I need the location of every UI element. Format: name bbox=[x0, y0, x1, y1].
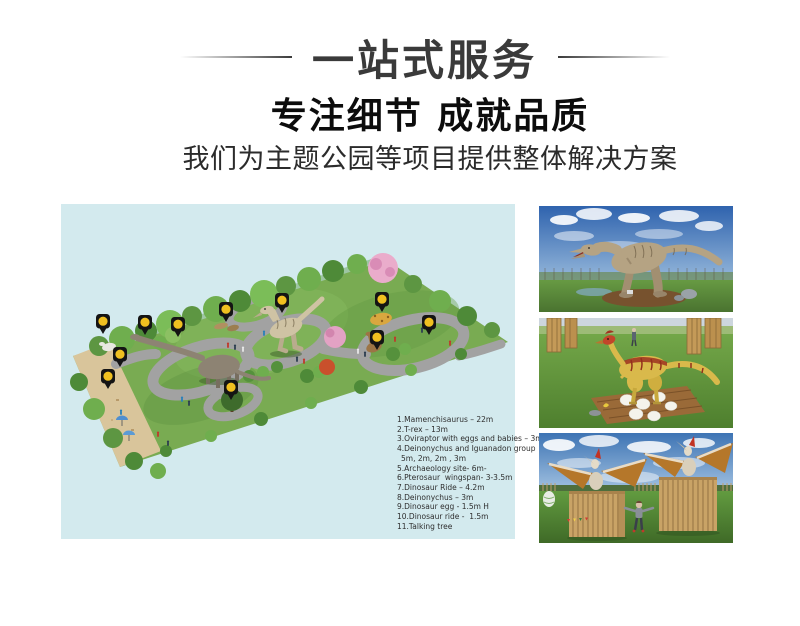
promo-page: 一站式服务 专注细节 成就品质 我们为主题公园等项目提供整体解决方案 bbox=[0, 0, 800, 626]
legend-item: 3.Oviraptor with eggs and babies – 3m bbox=[397, 434, 515, 444]
legend-item: 11.Talking tree bbox=[397, 522, 515, 532]
legend-item: 7.Dinosaur Ride – 4.2m bbox=[397, 483, 515, 493]
legend-item: 6.Pterosaur wingspan- 3-3.5m bbox=[397, 473, 515, 483]
legend-item: 10.Dinosaur ride - 1.5m bbox=[397, 512, 515, 522]
rock bbox=[674, 295, 684, 301]
page-heading: 专注细节 成就品质 bbox=[60, 87, 800, 139]
page-subheading: 我们为主题公园等项目提供整体解决方案 bbox=[60, 137, 800, 176]
photo-oviraptor-eggs bbox=[539, 318, 733, 428]
legend-item: 4.Deinonychus and Iguanadon group bbox=[397, 444, 515, 454]
banner-title: 一站式服务 bbox=[312, 27, 537, 88]
right-tower bbox=[659, 477, 717, 531]
mulch-bed bbox=[602, 289, 686, 307]
pink-tree-mid bbox=[324, 326, 346, 348]
title-divider-right bbox=[558, 56, 670, 58]
map-pin-icon bbox=[96, 314, 110, 334]
sign bbox=[627, 290, 633, 294]
legend-item: 5.Archaeology site- 6m- bbox=[397, 464, 515, 474]
cherry-blossom-tree bbox=[368, 253, 398, 283]
egg-decoration bbox=[543, 491, 555, 507]
map-legend: 1.Mamenchisaurus – 22m 2.T-rex – 13m 3.O… bbox=[397, 415, 515, 531]
photo-pterosaurs bbox=[539, 433, 733, 543]
legend-item: 1.Mamenchisaurus – 22m bbox=[397, 415, 515, 425]
legend-item: 9.Dinosaur egg - 1.5m H bbox=[397, 502, 515, 512]
photo-pterosaurs-illustration bbox=[539, 433, 733, 543]
title-divider-left bbox=[180, 56, 292, 58]
legend-item-continuation: 5m, 2m, 2m , 3m bbox=[397, 454, 515, 464]
photo-oviraptor-illustration bbox=[539, 318, 733, 428]
left-tower bbox=[569, 491, 625, 537]
photo-trex bbox=[539, 206, 733, 312]
red-tree bbox=[319, 359, 335, 375]
photo-trex-illustration bbox=[539, 206, 733, 312]
legend-item: 2.T-rex – 13m bbox=[397, 425, 515, 435]
park-masterplan-image: 1.Mamenchisaurus – 22m 2.T-rex – 13m 3.O… bbox=[61, 204, 515, 539]
rock bbox=[589, 410, 601, 416]
legend-item: 8.Deinonychus – 3m bbox=[397, 493, 515, 503]
